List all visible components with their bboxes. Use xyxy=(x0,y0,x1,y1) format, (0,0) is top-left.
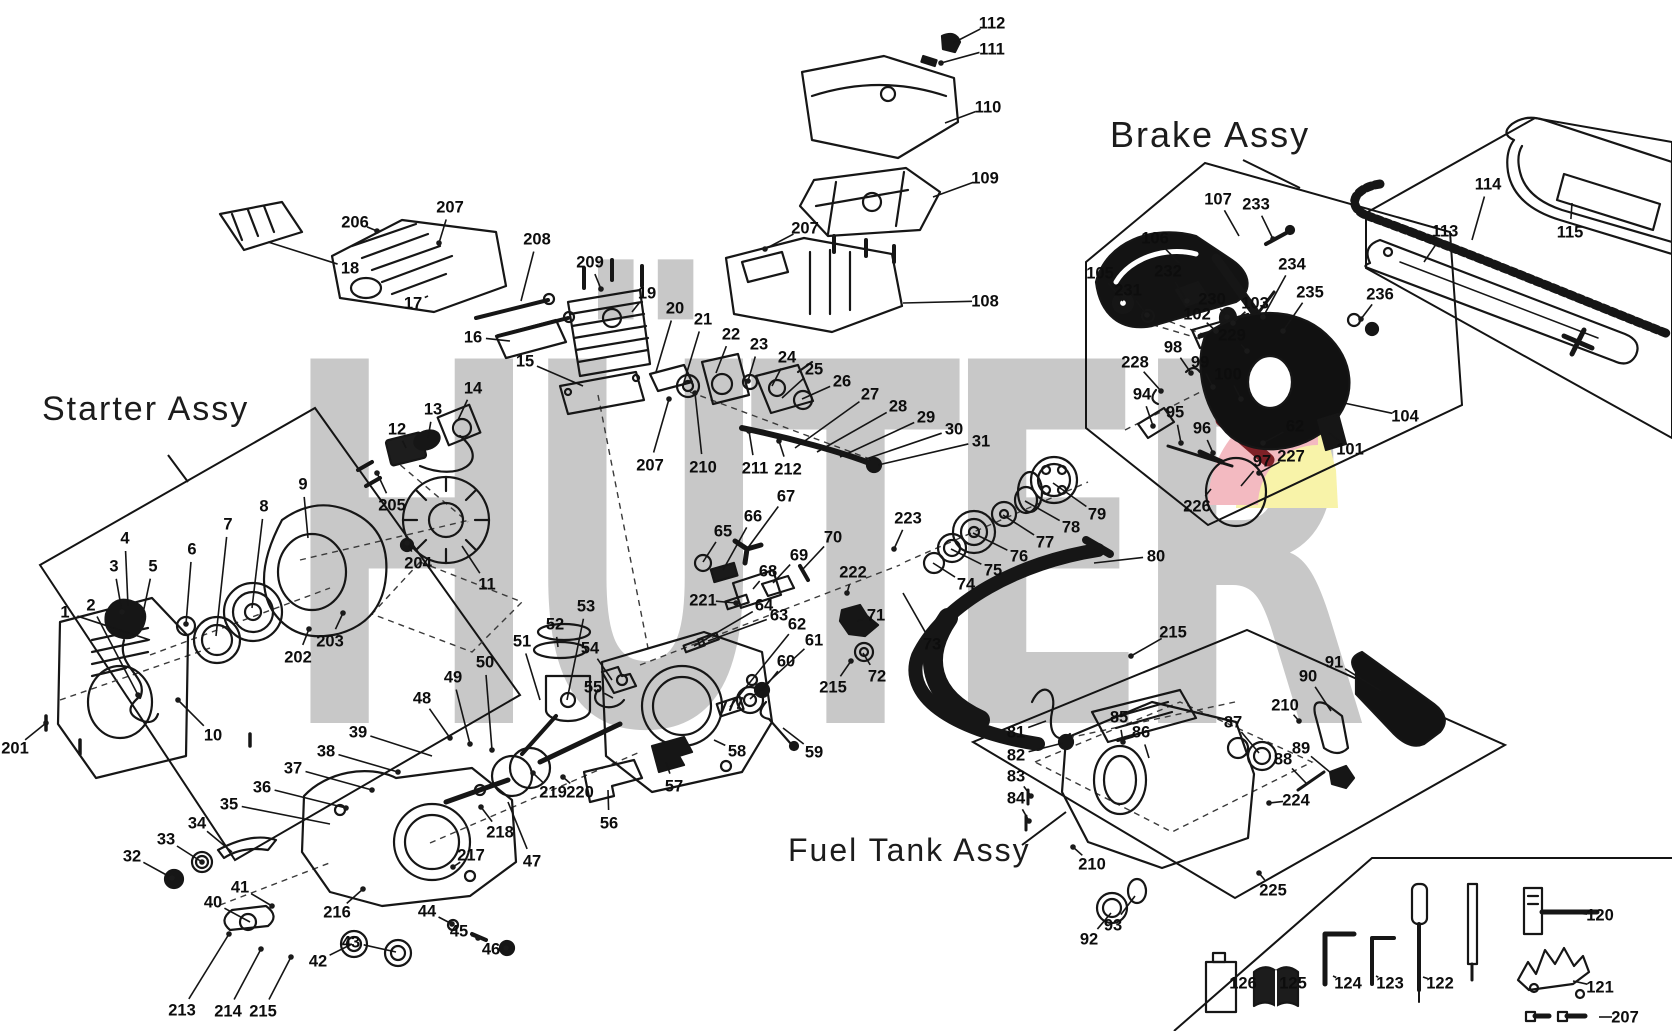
part-callout-19: 19 xyxy=(632,285,656,313)
part-callout-96: 96 xyxy=(1193,420,1216,456)
lever-bolt xyxy=(1266,232,1288,244)
svg-text:16: 16 xyxy=(464,329,482,347)
svg-text:3: 3 xyxy=(109,558,118,576)
svg-text:28: 28 xyxy=(889,398,907,416)
svg-text:90: 90 xyxy=(1299,668,1317,686)
svg-text:205: 205 xyxy=(378,497,406,515)
part-callout-125: 125 xyxy=(1279,975,1307,993)
part-callout-222: 222 xyxy=(839,564,867,596)
part-callout-205: 205 xyxy=(374,470,406,514)
flat-file xyxy=(1468,884,1477,964)
part-callout-59: 59 xyxy=(783,728,823,762)
part-callout-224: 224 xyxy=(1266,792,1310,810)
part-callout-126: 126 xyxy=(1229,975,1257,993)
svg-text:214: 214 xyxy=(214,1003,242,1021)
carb-spacer xyxy=(702,354,749,404)
svg-text:115: 115 xyxy=(1557,224,1584,242)
svg-text:57: 57 xyxy=(665,778,683,796)
svg-text:82: 82 xyxy=(1007,747,1025,765)
part-callout-16: 16 xyxy=(464,329,510,347)
clutch xyxy=(953,511,995,553)
cap-washer xyxy=(1128,879,1146,903)
starter-assy-label: Starter Assy xyxy=(42,390,249,429)
part-callout-48: 48 xyxy=(413,690,453,741)
svg-text:229: 229 xyxy=(1218,327,1246,345)
svg-text:221: 221 xyxy=(689,592,717,610)
svg-text:207: 207 xyxy=(791,220,819,238)
svg-text:54: 54 xyxy=(581,640,600,658)
svg-text:103: 103 xyxy=(1241,295,1269,313)
svg-text:207: 207 xyxy=(636,457,664,475)
svg-text:60: 60 xyxy=(777,653,795,671)
svg-text:31: 31 xyxy=(972,433,990,451)
svg-text:30: 30 xyxy=(945,421,963,439)
svg-text:98: 98 xyxy=(1164,339,1182,357)
svg-text:37: 37 xyxy=(284,760,302,778)
top-cover-parts xyxy=(726,34,960,332)
svg-text:49: 49 xyxy=(444,669,462,687)
svg-text:216: 216 xyxy=(323,904,351,922)
svg-text:39: 39 xyxy=(349,724,367,742)
svg-text:230: 230 xyxy=(1198,291,1226,309)
ignition-assembly-parts xyxy=(358,405,489,563)
svg-text:225: 225 xyxy=(1259,882,1287,900)
fuel-tank-assy-label: Fuel Tank Assy xyxy=(788,832,1031,869)
part-callout-225: 225 xyxy=(1256,870,1287,899)
part-callout-58: 58 xyxy=(714,740,746,761)
oil-seal xyxy=(385,940,411,966)
part-callout-77: 77 xyxy=(1003,515,1054,552)
svg-text:224: 224 xyxy=(1282,792,1310,810)
part-callout-215: 215 xyxy=(249,954,294,1020)
part-callout-215: 215 xyxy=(819,658,854,696)
rear-grip xyxy=(1352,652,1445,746)
svg-text:104: 104 xyxy=(1391,408,1419,426)
svg-text:81: 81 xyxy=(1007,724,1025,742)
knob-pin xyxy=(921,56,936,66)
svg-text:59: 59 xyxy=(805,744,823,762)
svg-text:14: 14 xyxy=(464,380,483,398)
svg-text:78: 78 xyxy=(1062,519,1080,537)
svg-text:228: 228 xyxy=(1121,354,1149,372)
svg-text:235: 235 xyxy=(1296,284,1324,302)
svg-text:2: 2 xyxy=(86,597,95,615)
svg-text:207: 207 xyxy=(1611,1009,1639,1027)
heat-shield xyxy=(220,202,302,250)
clamp xyxy=(794,391,812,409)
svg-text:42: 42 xyxy=(309,953,327,971)
oil-pump xyxy=(224,906,273,930)
cover-knob xyxy=(942,34,960,52)
svg-text:114: 114 xyxy=(1475,176,1502,194)
svg-text:27: 27 xyxy=(861,386,879,404)
pawl-carrier xyxy=(735,541,761,563)
svg-text:8: 8 xyxy=(259,498,268,516)
part-callout-218: 218 xyxy=(478,804,514,841)
svg-text:210: 210 xyxy=(1078,856,1106,874)
svg-text:86: 86 xyxy=(1132,724,1150,742)
svg-text:77: 77 xyxy=(1036,534,1054,552)
part-callout-27: 27 xyxy=(795,386,879,449)
part-callout-18: 18 xyxy=(268,242,359,278)
svg-text:41: 41 xyxy=(231,879,249,897)
part-callout-72: 72 xyxy=(863,653,886,686)
svg-text:46: 46 xyxy=(482,941,500,959)
svg-text:65: 65 xyxy=(714,523,732,541)
svg-text:111: 111 xyxy=(979,41,1005,59)
svg-text:122: 122 xyxy=(1426,975,1454,993)
spark-plug xyxy=(602,667,636,693)
svg-text:209: 209 xyxy=(576,254,604,272)
svg-text:67: 67 xyxy=(777,488,795,506)
svg-text:109: 109 xyxy=(971,170,999,188)
cover-screws xyxy=(834,236,894,262)
engine-top-cover xyxy=(726,238,902,332)
part-callout-34: 34 xyxy=(188,815,232,853)
svg-text:218: 218 xyxy=(486,824,514,842)
svg-text:11: 11 xyxy=(478,576,495,594)
bar-chain-parts xyxy=(1355,118,1672,364)
cylinder-assembly-parts xyxy=(560,260,881,472)
svg-text:5: 5 xyxy=(148,558,157,576)
part-callout-50: 50 xyxy=(476,654,495,753)
svg-text:210: 210 xyxy=(689,459,717,477)
svg-text:125: 125 xyxy=(1279,975,1307,993)
part-callout-69: 69 xyxy=(773,547,808,584)
part-callout-109: 109 xyxy=(933,170,999,198)
part-callout-209: 209 xyxy=(576,254,604,292)
svg-text:53: 53 xyxy=(577,598,595,616)
part-callout-79: 79 xyxy=(1053,483,1106,524)
svg-text:56: 56 xyxy=(600,815,618,833)
svg-text:227: 227 xyxy=(1277,448,1305,466)
svg-text:105: 105 xyxy=(1086,265,1114,283)
base-gasket xyxy=(560,372,644,414)
part-callout-207: 207 xyxy=(636,396,672,474)
switch-bracket xyxy=(652,737,692,772)
part-callout-29: 29 xyxy=(840,409,935,458)
svg-text:223: 223 xyxy=(894,510,922,528)
svg-text:108: 108 xyxy=(971,293,999,311)
svg-text:207: 207 xyxy=(436,199,464,217)
part-callout-45: 45 xyxy=(450,923,481,941)
svg-text:95: 95 xyxy=(1166,404,1184,422)
part-callout-89: 89 xyxy=(1292,740,1331,774)
svg-text:232: 232 xyxy=(1154,263,1182,281)
svg-text:99: 99 xyxy=(1191,354,1209,372)
part-callout-21: 21 xyxy=(684,311,712,383)
svg-text:52: 52 xyxy=(546,616,564,634)
part-callout-36: 36 xyxy=(253,779,349,811)
part-callout-38: 38 xyxy=(317,743,401,775)
part-callout-37: 37 xyxy=(284,760,375,793)
svg-text:23: 23 xyxy=(750,336,768,354)
svg-text:9: 9 xyxy=(298,476,307,494)
screwdriver-handle xyxy=(1412,884,1427,924)
part-callout-94: 94 xyxy=(1133,386,1156,429)
part-callout-6: 6 xyxy=(183,541,196,627)
svg-text:93: 93 xyxy=(1104,917,1122,935)
air-filter-cover xyxy=(802,56,958,158)
part-callout-114: 114 xyxy=(1472,176,1502,241)
svg-text:234: 234 xyxy=(1278,256,1306,274)
svg-text:18: 18 xyxy=(341,260,359,278)
svg-text:72: 72 xyxy=(868,668,886,686)
svg-text:94: 94 xyxy=(1133,386,1152,404)
svg-text:124: 124 xyxy=(1334,975,1362,993)
svg-text:75: 75 xyxy=(984,562,1002,580)
svg-text:85: 85 xyxy=(1110,709,1128,727)
part-callout-104: 104 xyxy=(1344,403,1420,426)
svg-text:213: 213 xyxy=(168,1002,196,1020)
part-callout-206: 206 xyxy=(341,214,380,234)
svg-text:47: 47 xyxy=(523,853,541,871)
svg-text:62: 62 xyxy=(788,616,806,634)
part-callout-5: 5 xyxy=(142,558,158,619)
svg-text:203: 203 xyxy=(316,633,344,651)
svg-text:66: 66 xyxy=(744,508,762,526)
svg-text:226: 226 xyxy=(1183,498,1211,516)
svg-text:71: 71 xyxy=(867,607,885,625)
svg-text:210: 210 xyxy=(1271,697,1299,715)
part-callout-102: 102 xyxy=(1183,306,1219,334)
svg-text:4: 4 xyxy=(120,530,130,548)
svg-text:74: 74 xyxy=(957,576,976,594)
svg-text:110: 110 xyxy=(975,99,1002,117)
part-callout-20: 20 xyxy=(656,300,684,373)
svg-text:88: 88 xyxy=(1274,751,1292,769)
svg-text:1: 1 xyxy=(60,604,69,622)
svg-text:6: 6 xyxy=(187,541,196,559)
part-callout-123: 123 xyxy=(1376,975,1404,993)
part-callout-108: 108 xyxy=(903,293,999,311)
part-callout-112: 112 xyxy=(953,15,1005,44)
svg-text:62: 62 xyxy=(1286,418,1304,436)
svg-text:48: 48 xyxy=(413,690,431,708)
svg-text:58: 58 xyxy=(728,743,746,761)
svg-text:204: 204 xyxy=(404,555,432,573)
part-callout-10: 10 xyxy=(175,697,222,744)
svg-text:7: 7 xyxy=(223,516,232,534)
part-callout-236: 236 xyxy=(1358,286,1394,322)
svg-text:79: 79 xyxy=(1088,506,1106,524)
svg-text:55: 55 xyxy=(584,679,602,697)
muffler-assembly-parts xyxy=(220,202,574,358)
part-callout-210: 210 xyxy=(1271,697,1302,724)
part-callout-41: 41 xyxy=(231,879,275,909)
svg-text:212: 212 xyxy=(774,461,802,479)
muffler-bolts xyxy=(476,300,568,336)
svg-text:89: 89 xyxy=(1292,740,1310,758)
part-callout-210: 210 xyxy=(1070,844,1106,873)
svg-text:222: 222 xyxy=(839,564,867,582)
part-callout-39: 39 xyxy=(349,724,432,757)
svg-text:201: 201 xyxy=(1,740,29,758)
svg-text:83: 83 xyxy=(1007,768,1025,786)
svg-text:100: 100 xyxy=(1214,366,1242,384)
svg-text:32: 32 xyxy=(123,848,141,866)
part-callout-215: 215 xyxy=(1128,624,1187,659)
bumper-spike xyxy=(1518,948,1589,990)
brake-assy-label: Brake Assy xyxy=(1110,114,1310,156)
part-callout-122: 122 xyxy=(1423,975,1454,993)
svg-text:107: 107 xyxy=(1204,191,1232,209)
svg-text:92: 92 xyxy=(1080,931,1098,949)
part-callouts-layer: 1234567891011121314151617181920212223242… xyxy=(1,15,1639,1027)
svg-text:215: 215 xyxy=(1159,624,1187,642)
svg-text:17: 17 xyxy=(404,295,422,313)
part-callout-61: 61 xyxy=(750,632,823,700)
fuel-cap xyxy=(1248,742,1276,770)
svg-text:106: 106 xyxy=(1141,230,1169,248)
svg-text:26: 26 xyxy=(833,373,851,391)
diagram-artwork: 1234567891011121314151617181920212223242… xyxy=(0,0,1672,1031)
svg-text:126: 126 xyxy=(1229,975,1257,993)
svg-text:21: 21 xyxy=(694,311,712,329)
part-callout-212: 212 xyxy=(774,438,802,478)
svg-text:12: 12 xyxy=(388,421,406,439)
part-callout-207: 207 xyxy=(436,199,464,246)
svg-text:25: 25 xyxy=(805,361,823,379)
svg-text:33: 33 xyxy=(157,831,175,849)
part-callout-201: 201 xyxy=(1,720,49,757)
parts-diagram-canvas: HÜTER xyxy=(0,0,1672,1031)
svg-text:22: 22 xyxy=(722,326,740,344)
part-callout-120: 120 xyxy=(1573,907,1614,925)
choke-rod xyxy=(761,702,791,744)
part-callout-223: 223 xyxy=(891,510,922,552)
svg-text:215: 215 xyxy=(819,679,847,697)
part-callout-43: 43 xyxy=(342,934,396,953)
svg-text:24: 24 xyxy=(778,349,797,367)
part-callout-28: 28 xyxy=(817,398,907,453)
svg-text:36: 36 xyxy=(253,779,271,797)
svg-text:215: 215 xyxy=(249,1003,277,1021)
svg-text:76: 76 xyxy=(1010,548,1028,566)
part-callout-78: 78 xyxy=(1025,501,1080,537)
svg-text:113: 113 xyxy=(1432,223,1459,241)
part-callout-226: 226 xyxy=(1183,489,1211,516)
svg-text:220: 220 xyxy=(566,784,594,802)
part-callout-208: 208 xyxy=(521,231,551,302)
part-callout-204: 204 xyxy=(404,540,432,572)
svg-text:217: 217 xyxy=(457,847,485,865)
svg-text:29: 29 xyxy=(917,409,935,427)
svg-text:40: 40 xyxy=(204,894,222,912)
svg-text:236: 236 xyxy=(1366,286,1394,304)
part-callout-121: 121 xyxy=(1573,979,1614,997)
svg-text:96: 96 xyxy=(1193,420,1211,438)
part-callout-14: 14 xyxy=(458,380,483,421)
svg-text:80: 80 xyxy=(1147,548,1165,566)
svg-text:101: 101 xyxy=(1336,441,1364,459)
part-callout-33: 33 xyxy=(157,831,205,865)
part-callout-124: 124 xyxy=(1333,975,1363,993)
part-callout-74: 74 xyxy=(933,563,976,594)
svg-text:45: 45 xyxy=(450,923,468,941)
saw-chain xyxy=(1355,184,1668,334)
starter-pawl xyxy=(130,698,158,722)
part-callout-203: 203 xyxy=(316,610,346,650)
svg-text:10: 10 xyxy=(204,727,222,745)
part-callout-22: 22 xyxy=(716,326,740,374)
svg-text:69: 69 xyxy=(790,547,808,565)
coil-plate xyxy=(438,405,481,446)
svg-text:202: 202 xyxy=(284,649,312,667)
svg-text:50: 50 xyxy=(476,654,494,672)
svg-text:35: 35 xyxy=(220,796,238,814)
fuel-hose xyxy=(1032,690,1070,739)
svg-text:64: 64 xyxy=(755,597,774,615)
fuel-tank-parts xyxy=(1026,652,1445,923)
svg-text:73: 73 xyxy=(923,636,941,654)
svg-text:84: 84 xyxy=(1007,790,1026,808)
air-filter xyxy=(800,168,940,236)
part-callout-32: 32 xyxy=(123,848,175,881)
svg-text:19: 19 xyxy=(638,285,656,303)
svg-text:15: 15 xyxy=(516,353,534,371)
part-callout-98: 98 xyxy=(1164,339,1194,376)
svg-text:91: 91 xyxy=(1325,654,1343,672)
svg-text:211: 211 xyxy=(742,460,769,478)
svg-text:38: 38 xyxy=(317,743,335,761)
svg-text:233: 233 xyxy=(1242,196,1270,214)
part-callout-233: 233 xyxy=(1242,196,1276,242)
part-callout-65: 65 xyxy=(703,523,732,563)
svg-text:231: 231 xyxy=(1114,282,1142,300)
svg-text:61: 61 xyxy=(805,632,823,650)
svg-text:206: 206 xyxy=(341,214,369,232)
part-callout-217: 217 xyxy=(450,847,485,870)
svg-text:121: 121 xyxy=(1586,979,1614,997)
part-callout-70: 70 xyxy=(803,529,842,570)
svg-text:112: 112 xyxy=(979,15,1006,33)
svg-text:123: 123 xyxy=(1376,975,1404,993)
svg-text:120: 120 xyxy=(1586,907,1614,925)
svg-text:87: 87 xyxy=(1224,714,1242,732)
part-callout-110: 110 xyxy=(945,99,1001,124)
svg-text:13: 13 xyxy=(424,401,442,419)
part-callout-207: 207 xyxy=(1599,1009,1639,1027)
part-callout-11: 11 xyxy=(462,546,496,594)
part-callout-4: 4 xyxy=(120,530,130,607)
svg-text:44: 44 xyxy=(418,903,437,921)
part-callout-15: 15 xyxy=(516,353,583,387)
svg-text:43: 43 xyxy=(342,934,360,952)
part-callout-107: 107 xyxy=(1204,191,1239,237)
svg-text:51: 51 xyxy=(513,633,531,651)
svg-text:20: 20 xyxy=(666,300,684,318)
svg-text:34: 34 xyxy=(188,815,207,833)
svg-text:208: 208 xyxy=(523,231,551,249)
svg-text:219: 219 xyxy=(539,784,567,802)
svg-text:68: 68 xyxy=(759,563,777,581)
svg-text:70: 70 xyxy=(824,529,842,547)
